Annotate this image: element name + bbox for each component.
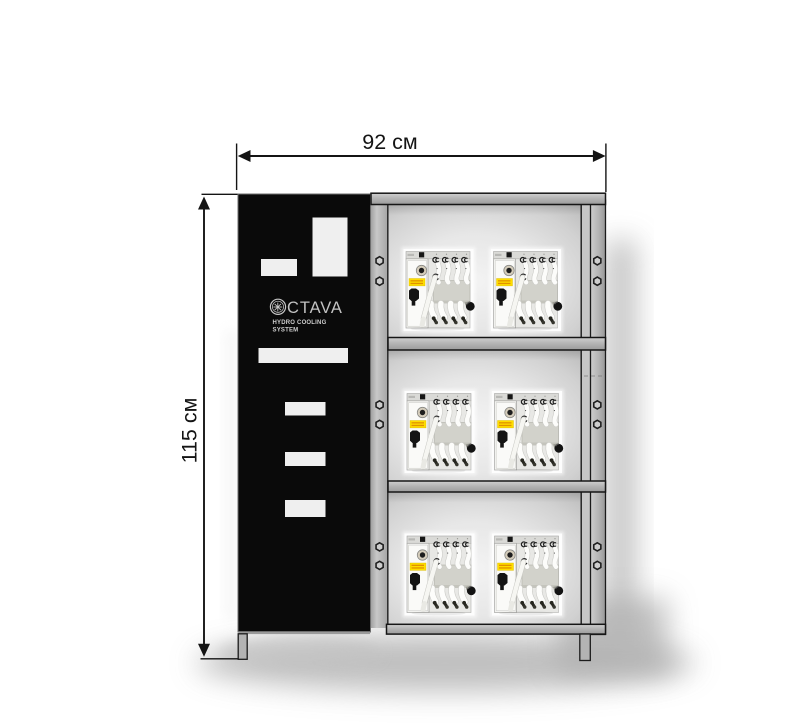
svg-text:SYSTEM: SYSTEM xyxy=(273,327,299,333)
svg-text:HYDRO COOLING: HYDRO COOLING xyxy=(273,320,327,326)
svg-text:CTAVA: CTAVA xyxy=(287,299,343,317)
svg-text:92 см: 92 см xyxy=(362,130,417,154)
svg-text:115 см: 115 см xyxy=(178,398,202,464)
